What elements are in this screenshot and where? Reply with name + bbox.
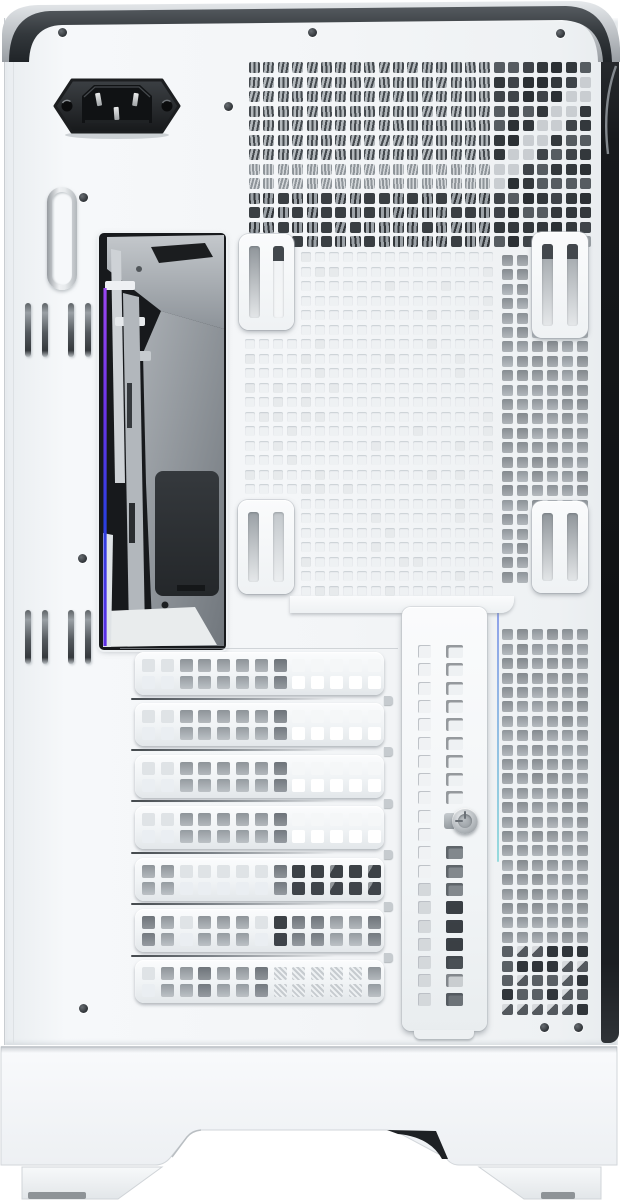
vent-hole — [451, 207, 462, 218]
grid-hole — [562, 457, 573, 468]
grid-hole — [502, 961, 513, 972]
grid-hole — [517, 284, 528, 295]
pci-vent-hole — [198, 779, 211, 792]
vent-hole — [292, 91, 303, 102]
grid-hole — [245, 339, 255, 349]
vent-hole — [321, 193, 332, 204]
pci-vent-hole — [349, 659, 362, 672]
vent-hole — [335, 164, 346, 175]
pci-vent-hole — [198, 984, 211, 997]
pci-vent-hole — [198, 659, 211, 672]
grid-hole — [301, 281, 311, 291]
grid-hole — [502, 932, 513, 943]
pci-vent-hole — [368, 967, 381, 980]
pci-vent-hole — [142, 727, 155, 740]
grid-hole — [301, 383, 311, 393]
vent-hole — [379, 222, 390, 233]
vent-hole — [451, 77, 462, 88]
grid-hole — [413, 339, 423, 349]
grid-hole — [441, 339, 451, 349]
grid-hole — [329, 571, 339, 581]
grid-hole — [343, 542, 353, 552]
pci-vent-hole — [292, 882, 305, 895]
bracket-hole — [446, 993, 463, 1006]
grid-hole — [502, 356, 513, 367]
grid-hole — [502, 284, 513, 295]
pci-vent-hole — [368, 676, 381, 689]
grid-hole — [562, 961, 573, 972]
pci-vent-hole — [198, 882, 211, 895]
grid-hole — [315, 426, 325, 436]
pci-vent-hole — [292, 710, 305, 723]
bracket-hole — [446, 663, 463, 676]
vent-hole — [479, 222, 490, 233]
pci-vent-hole — [274, 659, 287, 672]
pci-vent-hole — [142, 916, 155, 929]
pci-vent-hole — [330, 676, 343, 689]
vent-hole — [379, 178, 390, 189]
vent-hole — [321, 149, 332, 160]
grid-hole — [547, 716, 558, 727]
grid-hole — [532, 457, 543, 468]
vent-hole — [508, 149, 519, 160]
plate-slot — [542, 513, 553, 581]
grid-hole — [502, 269, 513, 280]
side-panel-seam — [13, 58, 14, 1044]
vent-hole — [393, 193, 404, 204]
pci-vent-hole — [142, 659, 155, 672]
pci-vent-hole — [292, 984, 305, 997]
grid-hole — [562, 701, 573, 712]
grid-hole — [413, 397, 423, 407]
vent-hole — [537, 207, 548, 218]
grid-hole — [502, 687, 513, 698]
pci-slot-cover — [135, 960, 384, 1003]
grid-hole — [441, 499, 451, 509]
grid-hole — [385, 296, 395, 306]
grid-hole — [483, 296, 493, 306]
grid-hole — [562, 889, 573, 900]
grid-hole — [371, 513, 381, 523]
grid-hole — [301, 339, 311, 349]
io-cutout-window — [99, 233, 226, 650]
grid-hole — [371, 571, 381, 581]
grid-hole — [483, 325, 493, 335]
vent-hole — [335, 193, 346, 204]
grid-hole — [483, 281, 493, 291]
pci-vent-hole — [255, 967, 268, 980]
grid-hole — [547, 442, 558, 453]
grid-hole — [502, 889, 513, 900]
column-slot-2 — [129, 503, 135, 543]
vent-hole — [292, 164, 303, 175]
bracket-hole — [446, 773, 463, 786]
grid-hole — [371, 339, 381, 349]
grid-hole — [547, 932, 558, 943]
panel-screw — [540, 1023, 549, 1032]
vent-hole — [494, 236, 505, 247]
pci-vent-hole — [368, 813, 381, 826]
pci-vent-hole — [236, 933, 249, 946]
pci-latch-tab — [384, 696, 393, 705]
grid-hole — [329, 528, 339, 538]
grid-hole — [532, 817, 543, 828]
vent-hole — [393, 164, 404, 175]
grid-hole — [502, 370, 513, 381]
grid-hole — [483, 499, 493, 509]
pci-vent-hole — [161, 710, 174, 723]
grid-hole — [273, 441, 283, 451]
vent-hole — [523, 106, 534, 117]
grid-hole — [371, 383, 381, 393]
vent-hole — [580, 120, 591, 131]
grid-hole — [413, 252, 423, 262]
grid-hole — [343, 281, 353, 291]
grid-hole — [259, 354, 269, 364]
grid-hole — [577, 989, 588, 1000]
grid-hole — [562, 413, 573, 424]
pci-vent-hole — [349, 865, 362, 878]
vent-hole — [537, 193, 548, 204]
grid-hole — [483, 354, 493, 364]
vent-hole — [422, 149, 433, 160]
grid-hole — [413, 267, 423, 277]
grid-hole — [427, 354, 437, 364]
bracket-hole — [446, 901, 463, 914]
foot-pad-right — [541, 1192, 575, 1199]
grid-hole — [532, 356, 543, 367]
vent-hole — [494, 91, 505, 102]
grid-hole — [562, 946, 573, 957]
grid-hole — [413, 542, 423, 552]
vent-hole — [422, 222, 433, 233]
pci-vent-hole — [217, 727, 230, 740]
grid-hole — [562, 730, 573, 741]
grid-hole — [385, 441, 395, 451]
grid-hole — [385, 339, 395, 349]
grid-hole — [577, 428, 588, 439]
vent-hole — [364, 207, 375, 218]
grid-hole — [517, 802, 528, 813]
grid-hole — [502, 529, 513, 540]
grid-hole — [427, 426, 437, 436]
bracket-hole — [418, 645, 431, 658]
grid-hole — [287, 412, 297, 422]
grid-hole — [577, 1004, 588, 1015]
bracket-hole — [446, 791, 463, 804]
vent-hole — [494, 77, 505, 88]
pci-latch-tab — [384, 902, 393, 911]
grid-hole — [532, 370, 543, 381]
grid-hole — [517, 831, 528, 842]
pci-slot-gap-line — [131, 852, 363, 854]
vent-hole — [436, 106, 447, 117]
grid-hole — [455, 455, 465, 465]
grid-hole — [502, 946, 513, 957]
pci-vent-hole — [292, 779, 305, 792]
vent-hole — [494, 106, 505, 117]
pci-vent-hole — [311, 830, 324, 843]
grid-hole — [532, 889, 543, 900]
grid-hole — [399, 426, 409, 436]
vent-hole — [580, 106, 591, 117]
grid-hole — [469, 368, 479, 378]
grid-hole — [469, 252, 479, 262]
vent-hole — [364, 178, 375, 189]
pass-through-plate — [239, 234, 294, 330]
grid-hole — [547, 673, 558, 684]
grid-hole — [427, 513, 437, 523]
grid-hole — [427, 339, 437, 349]
grid-hole — [469, 571, 479, 581]
pci-vent-hole — [330, 933, 343, 946]
grid-hole — [455, 412, 465, 422]
grid-hole — [413, 281, 423, 291]
vent-hole — [393, 178, 404, 189]
vent-hole — [321, 135, 332, 146]
grid-hole — [502, 327, 513, 338]
grid-hole — [562, 485, 573, 496]
pci-vent-hole — [198, 727, 211, 740]
bracket-hole — [418, 956, 431, 969]
pci-vent-hole — [161, 676, 174, 689]
bracket-hole — [418, 865, 431, 878]
grid-hole — [385, 252, 395, 262]
pc-case-rear-photo — [0, 0, 622, 1200]
grid-hole — [273, 412, 283, 422]
vent-hole — [350, 91, 361, 102]
vent-hole — [292, 120, 303, 131]
grid-hole — [287, 426, 297, 436]
vent-hole — [580, 135, 591, 146]
vent-hole — [364, 149, 375, 160]
vent-hole — [537, 120, 548, 131]
vent-hole — [263, 207, 274, 218]
grid-hole — [532, 874, 543, 885]
vent-hole — [566, 106, 577, 117]
grid-hole — [517, 514, 528, 525]
grid-hole — [562, 341, 573, 352]
grid-hole — [441, 354, 451, 364]
vent-hole — [278, 164, 289, 175]
grid-hole — [577, 917, 588, 928]
grid-hole — [455, 339, 465, 349]
vent-hole — [465, 222, 476, 233]
grid-hole — [343, 412, 353, 422]
grid-hole — [483, 383, 493, 393]
pci-vent-hole — [236, 967, 249, 980]
grid-hole — [577, 759, 588, 770]
grid-hole — [357, 267, 367, 277]
vent-hole — [307, 77, 318, 88]
grid-hole — [517, 644, 528, 655]
pci-vent-hole — [292, 813, 305, 826]
vent-hole — [249, 207, 260, 218]
grid-hole — [371, 557, 381, 567]
grid-hole — [577, 788, 588, 799]
grid-hole — [315, 499, 325, 509]
grid-hole — [329, 339, 339, 349]
grid-hole — [483, 571, 493, 581]
vent-hole — [263, 164, 274, 175]
vent-hole — [335, 77, 346, 88]
pci-vent-hole — [236, 779, 249, 792]
vent-hole — [508, 120, 519, 131]
rgb-light-strip — [104, 288, 106, 646]
vent-hole — [479, 77, 490, 88]
bracket-hole — [418, 901, 431, 914]
grid-hole — [517, 773, 528, 784]
pci-vent-hole — [236, 710, 249, 723]
grid-hole — [273, 470, 283, 480]
vent-hole — [523, 135, 534, 146]
vent-hole — [407, 222, 418, 233]
vent-hole — [523, 207, 534, 218]
vent-hole — [379, 193, 390, 204]
grid-hole — [399, 412, 409, 422]
grid-hole — [547, 341, 558, 352]
pci-vent-hole — [255, 727, 268, 740]
grid-hole — [547, 687, 558, 698]
vent-hole — [407, 149, 418, 160]
vent-hole — [335, 106, 346, 117]
grid-hole — [273, 397, 283, 407]
bracket-hole — [446, 846, 463, 859]
bracket-hole — [446, 682, 463, 695]
left-edge-line — [4, 18, 5, 1045]
grid-hole — [371, 412, 381, 422]
grid-hole — [399, 441, 409, 451]
grid-hole — [427, 484, 437, 494]
grid-hole — [301, 397, 311, 407]
vent-hole — [551, 222, 562, 233]
grid-hole — [399, 383, 409, 393]
bracket-hole — [446, 920, 463, 933]
grid-hole — [562, 428, 573, 439]
pci-vent-hole — [180, 813, 193, 826]
grid-hole — [502, 701, 513, 712]
grid-hole — [441, 586, 451, 596]
vent-hole — [379, 164, 390, 175]
grid-hole — [577, 745, 588, 756]
vent-hole — [451, 236, 462, 247]
grid-hole — [245, 455, 255, 465]
grid-hole — [399, 557, 409, 567]
grid-hole — [577, 413, 588, 424]
grid-hole — [455, 484, 465, 494]
vent-hole — [263, 222, 274, 233]
grid-hole — [517, 687, 528, 698]
grid-hole — [532, 673, 543, 684]
vent-hole — [278, 91, 289, 102]
pci-latch-tab — [384, 850, 393, 859]
grid-hole — [301, 586, 311, 596]
pci-vent-hole — [198, 967, 211, 980]
grid-hole — [469, 296, 479, 306]
grid-hole — [371, 281, 381, 291]
grid-hole — [532, 845, 543, 856]
pci-slot-cover — [135, 652, 384, 695]
pci-vent-hole — [255, 659, 268, 672]
pci-latch-tab — [384, 747, 393, 756]
grid-hole — [547, 471, 558, 482]
pci-slot-gap-line — [131, 800, 363, 802]
pci-vent-hole — [292, 676, 305, 689]
grid-hole — [547, 860, 558, 871]
grid-hole — [441, 571, 451, 581]
pass-through-plate — [532, 501, 588, 593]
grid-hole — [502, 255, 513, 266]
vent-hole — [249, 120, 260, 131]
grid-hole — [577, 817, 588, 828]
vent-hole — [523, 149, 534, 160]
vent-hole — [321, 77, 332, 88]
pci-vent-hole — [142, 967, 155, 980]
grid-hole — [455, 542, 465, 552]
grid-hole — [259, 383, 269, 393]
grid-hole — [517, 1004, 528, 1015]
grid-hole — [441, 296, 451, 306]
grid-hole — [547, 730, 558, 741]
grid-hole — [301, 325, 311, 335]
vent-hole — [278, 178, 289, 189]
grid-hole — [517, 701, 528, 712]
grid-hole — [343, 397, 353, 407]
grid-hole — [259, 397, 269, 407]
pci-vent-hole — [236, 882, 249, 895]
grid-hole — [413, 528, 423, 538]
grid-hole — [441, 441, 451, 451]
grid-hole — [315, 455, 325, 465]
vent-hole — [379, 207, 390, 218]
pci-vent-hole — [142, 865, 155, 878]
grid-hole — [385, 426, 395, 436]
pci-vent-hole — [368, 659, 381, 672]
grid-hole — [315, 383, 325, 393]
grid-hole — [441, 412, 451, 422]
grid-hole — [502, 572, 513, 583]
vent-hole — [451, 120, 462, 131]
grid-hole — [329, 542, 339, 552]
pci-vent-hole — [292, 659, 305, 672]
vent-hole — [465, 135, 476, 146]
pci-vent-hole — [292, 967, 305, 980]
pci-vent-hole — [349, 830, 362, 843]
grid-hole — [427, 542, 437, 552]
grid-hole — [455, 383, 465, 393]
grid-hole — [427, 252, 437, 262]
vent-hole — [465, 120, 476, 131]
grid-hole — [399, 455, 409, 465]
shroud-notch — [177, 585, 205, 591]
grid-hole — [427, 470, 437, 480]
vent-hole — [494, 164, 505, 175]
vent-hole — [350, 106, 361, 117]
bracket-bottom-tab — [414, 1030, 474, 1039]
pci-vent-hole — [349, 779, 362, 792]
vent-hole — [278, 149, 289, 160]
pci-vent-hole — [311, 727, 324, 740]
grid-hole — [329, 267, 339, 277]
grid-hole — [469, 267, 479, 277]
vent-hole — [407, 106, 418, 117]
grid-hole — [502, 557, 513, 568]
vent-hole — [379, 149, 390, 160]
pci-vent-hole — [274, 779, 287, 792]
vent-hole — [551, 178, 562, 189]
grid-hole — [517, 557, 528, 568]
vent-hole — [479, 178, 490, 189]
